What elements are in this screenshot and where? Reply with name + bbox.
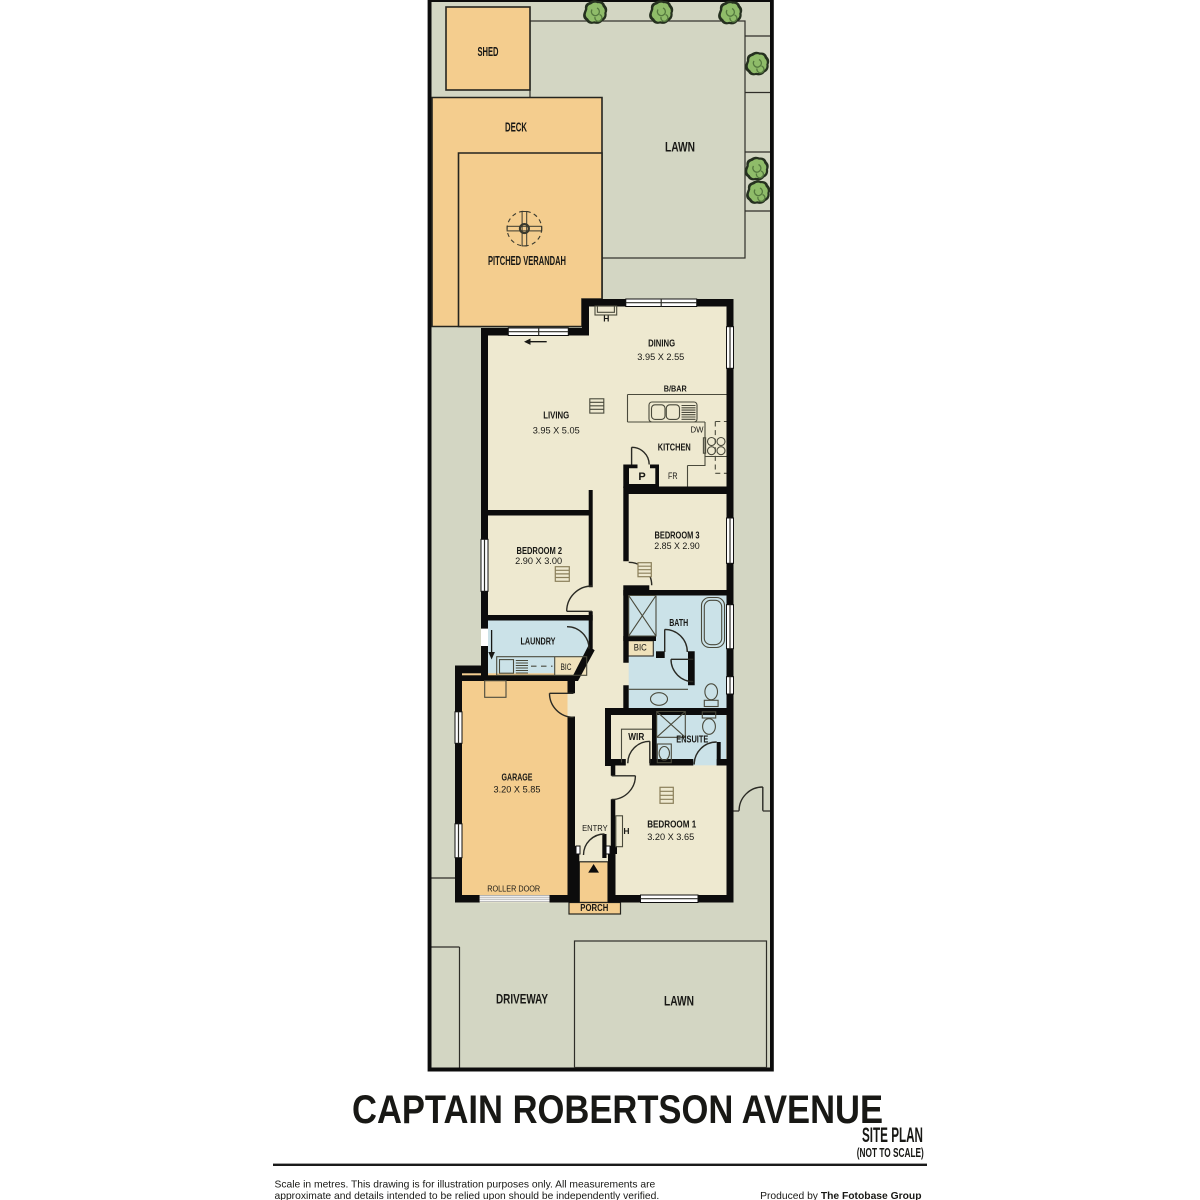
svg-text:H: H: [623, 826, 629, 836]
svg-text:BIC: BIC: [561, 662, 572, 672]
svg-text:FR: FR: [668, 471, 678, 481]
svg-text:ROLLER DOOR: ROLLER DOOR: [487, 884, 540, 894]
svg-text:Produced by The Fotobase Group: Produced by The Fotobase Group: [760, 1191, 921, 1200]
svg-text:BEDROOM 1: BEDROOM 1: [647, 819, 696, 831]
svg-text:KITCHEN: KITCHEN: [658, 442, 691, 454]
svg-text:LAWN: LAWN: [665, 140, 695, 155]
svg-text:DW: DW: [691, 425, 704, 435]
svg-text:SITE PLAN: SITE PLAN: [862, 1124, 923, 1147]
svg-text:Scale in metres. This drawing: Scale in metres. This drawing is for ill…: [275, 1179, 656, 1190]
svg-text:2.90 X 3.00: 2.90 X 3.00: [515, 556, 562, 567]
svg-text:H: H: [603, 314, 609, 324]
svg-text:(NOT TO SCALE): (NOT TO SCALE): [857, 1145, 924, 1160]
svg-text:BATH: BATH: [669, 617, 688, 629]
svg-text:ENSUITE: ENSUITE: [676, 734, 708, 746]
svg-text:DINING: DINING: [648, 338, 675, 350]
svg-text:LAUNDRY: LAUNDRY: [521, 636, 556, 648]
svg-text:PORCH: PORCH: [580, 903, 608, 914]
svg-text:B/BAR: B/BAR: [664, 383, 687, 393]
svg-text:PITCHED VERANDAH: PITCHED VERANDAH: [488, 254, 566, 268]
svg-text:DECK: DECK: [505, 120, 527, 135]
svg-text:LAWN: LAWN: [664, 993, 694, 1008]
svg-text:ENTRY: ENTRY: [582, 823, 608, 833]
svg-text:WIR: WIR: [628, 731, 644, 743]
svg-text:P: P: [638, 471, 645, 483]
svg-text:CAPTAIN ROBERTSON AVENUE: CAPTAIN ROBERTSON AVENUE: [352, 1088, 883, 1132]
svg-text:BEDROOM 3: BEDROOM 3: [655, 530, 700, 542]
svg-text:GARAGE: GARAGE: [502, 772, 533, 784]
svg-text:BIC: BIC: [634, 643, 647, 653]
svg-text:3.95 X 2.55: 3.95 X 2.55: [637, 352, 684, 363]
svg-text:3.20 X 5.85: 3.20 X 5.85: [494, 784, 541, 795]
svg-text:3.20 X 3.65: 3.20 X 3.65: [647, 832, 694, 843]
svg-text:DRIVEWAY: DRIVEWAY: [496, 990, 548, 1006]
svg-text:SHED: SHED: [478, 44, 499, 59]
svg-text:2.85 X 2.90: 2.85 X 2.90: [654, 541, 700, 552]
svg-text:3.95 X 5.05: 3.95 X 5.05: [533, 426, 580, 437]
svg-text:LIVING: LIVING: [543, 410, 569, 422]
svg-text:approximate and details intend: approximate and details intended to be r…: [275, 1191, 660, 1200]
